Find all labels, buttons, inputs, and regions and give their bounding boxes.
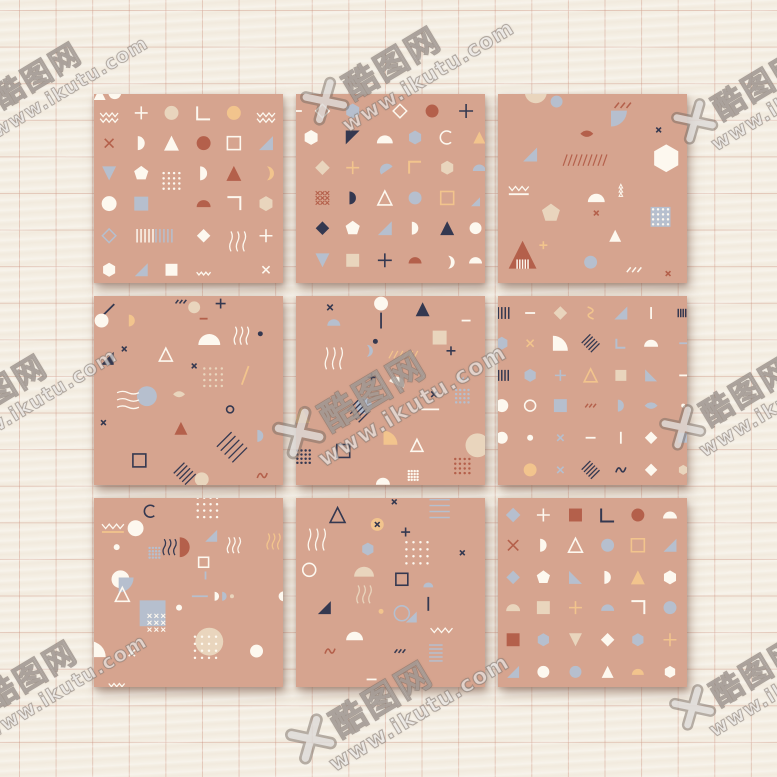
pattern-tile-5 <box>296 296 485 485</box>
pattern-tile-9 <box>498 498 687 687</box>
pattern-tiles-grid <box>94 94 687 687</box>
pattern-tile-6 <box>498 296 687 485</box>
pattern-tile-8 <box>296 498 485 687</box>
pattern-tile-4 <box>94 296 283 485</box>
pattern-tile-7 <box>94 498 283 687</box>
pattern-tile-2 <box>296 94 485 283</box>
pattern-tile-1 <box>94 94 283 283</box>
pattern-tile-3 <box>498 94 687 283</box>
pattern-collection-canvas: 酷图网www.ikutu.com酷图网www.ikutu.com酷图网www.i… <box>0 0 777 777</box>
